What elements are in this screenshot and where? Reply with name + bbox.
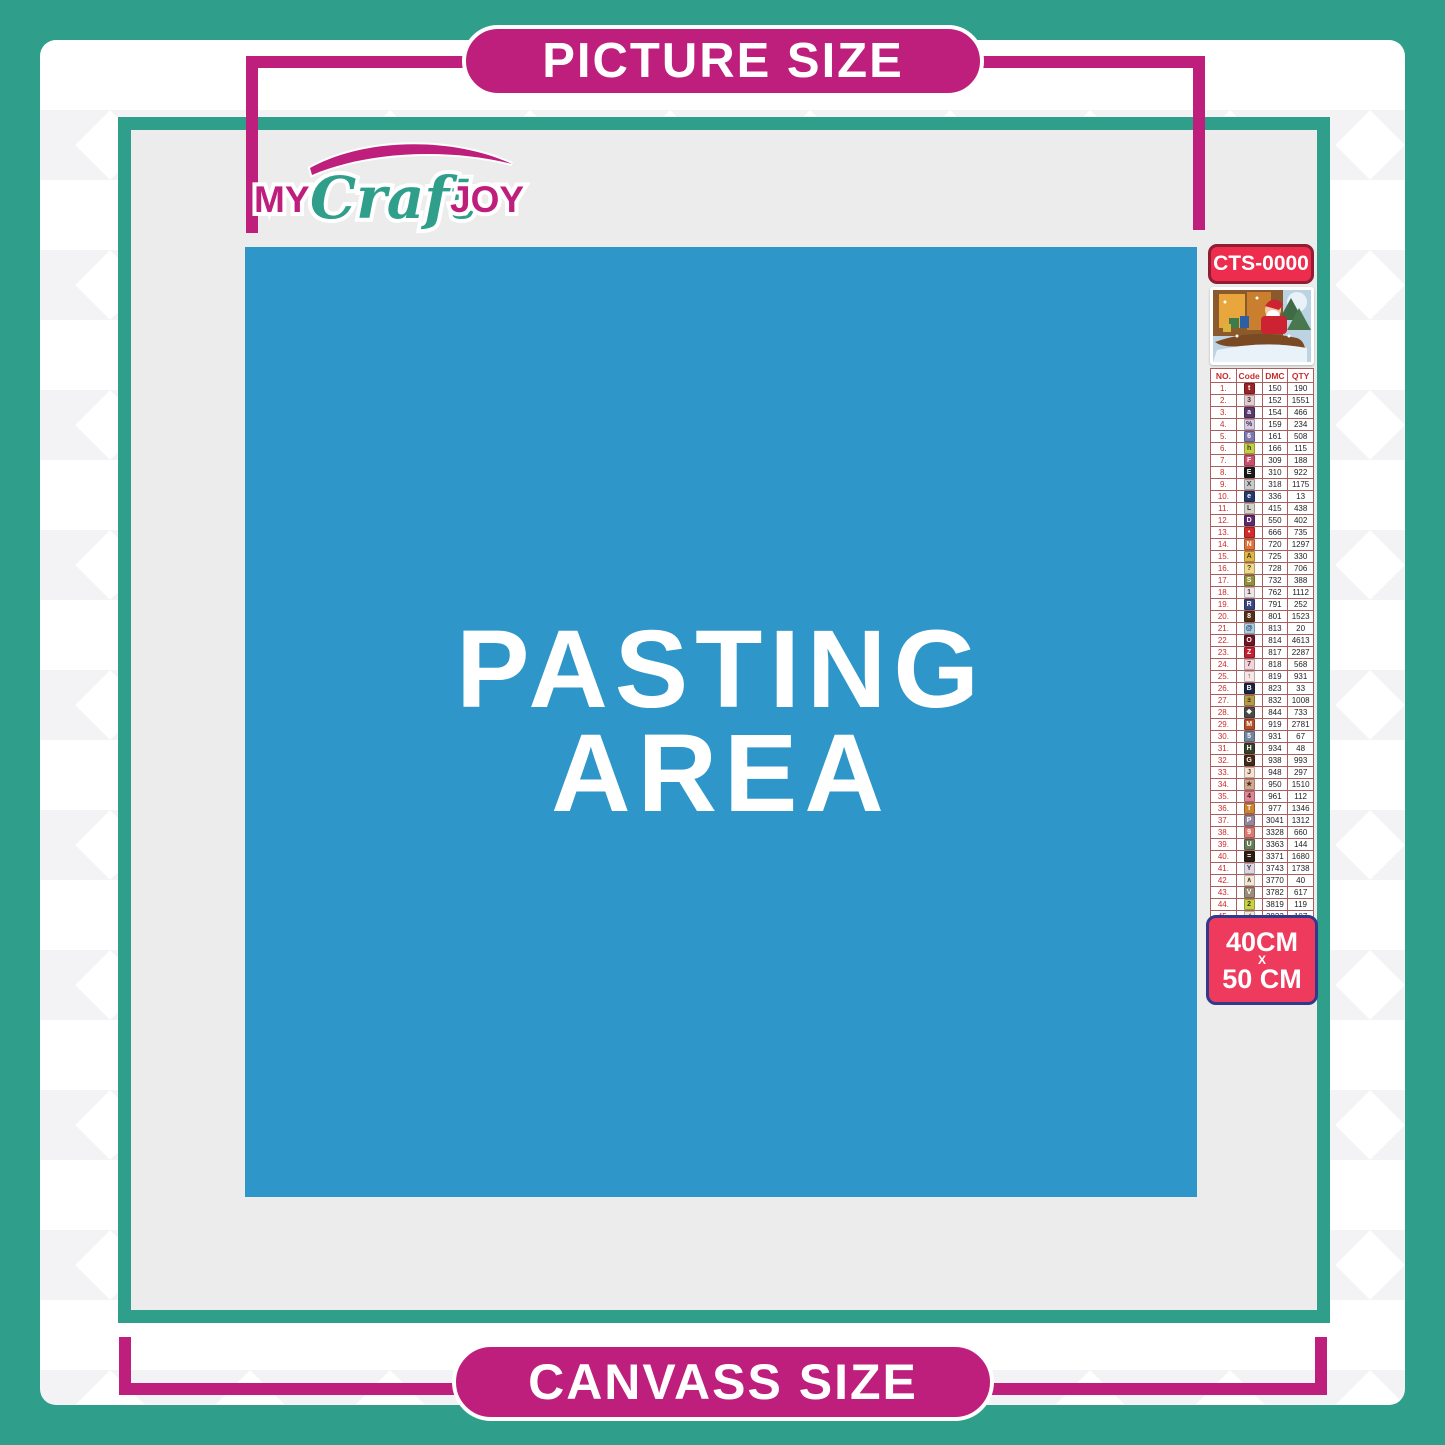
table-row: 25.↑819931 xyxy=(1211,671,1314,683)
cell-code: = xyxy=(1236,851,1262,863)
cell-qty: 1551 xyxy=(1288,395,1314,407)
symbol-swatch: P xyxy=(1244,815,1255,826)
brand-logo: MY Craft JOY xyxy=(244,134,544,244)
cell-qty: 40 xyxy=(1288,875,1314,887)
cell-dmc: 938 xyxy=(1262,755,1288,767)
cell-code: P xyxy=(1236,815,1262,827)
cell-dmc: 415 xyxy=(1262,503,1288,515)
cell-no: 9. xyxy=(1211,479,1237,491)
cell-no: 7. xyxy=(1211,455,1237,467)
table-row: 7.F309188 xyxy=(1211,455,1314,467)
table-row: 3.a154466 xyxy=(1211,407,1314,419)
table-row: 42.∧377040 xyxy=(1211,875,1314,887)
cell-dmc: 3819 xyxy=(1262,899,1288,911)
cell-qty: 48 xyxy=(1288,743,1314,755)
cell-no: 23. xyxy=(1211,647,1237,659)
symbol-swatch: N xyxy=(1244,539,1255,550)
symbol-swatch: Z xyxy=(1244,647,1255,658)
cell-qty: 234 xyxy=(1288,419,1314,431)
symbol-swatch: 9 xyxy=(1244,827,1255,838)
cell-qty: 388 xyxy=(1288,575,1314,587)
symbol-swatch: E xyxy=(1244,467,1255,478)
cell-qty: 1175 xyxy=(1288,479,1314,491)
table-row: 17.S732388 xyxy=(1211,575,1314,587)
symbol-swatch: X xyxy=(1244,479,1255,490)
cell-no: 3. xyxy=(1211,407,1237,419)
cell-no: 44. xyxy=(1211,899,1237,911)
brand-logo-graphic: MY Craft JOY xyxy=(244,134,544,244)
cell-qty: 1680 xyxy=(1288,851,1314,863)
cell-no: 17. xyxy=(1211,575,1237,587)
poster: PASTING AREA MY Craft JOY CTS-0000 xyxy=(0,0,1445,1445)
cell-code: G xyxy=(1236,755,1262,767)
picture-bracket-right-line xyxy=(1193,56,1205,230)
table-row: 33.J948297 xyxy=(1211,767,1314,779)
table-row: 38.93328660 xyxy=(1211,827,1314,839)
cell-dmc: 819 xyxy=(1262,671,1288,683)
symbol-swatch: F xyxy=(1244,455,1255,466)
cell-code: E xyxy=(1236,467,1262,479)
table-row: 22.O8144613 xyxy=(1211,635,1314,647)
cell-no: 35. xyxy=(1211,791,1237,803)
cell-dmc: 844 xyxy=(1262,707,1288,719)
cell-qty: 4613 xyxy=(1288,635,1314,647)
symbol-swatch: 1 xyxy=(1244,587,1255,598)
cell-dmc: 961 xyxy=(1262,791,1288,803)
table-row: 26.B82333 xyxy=(1211,683,1314,695)
cell-dmc: 817 xyxy=(1262,647,1288,659)
cell-qty: 190 xyxy=(1288,383,1314,395)
table-row: 12.D550402 xyxy=(1211,515,1314,527)
cell-no: 22. xyxy=(1211,635,1237,647)
cell-dmc: 823 xyxy=(1262,683,1288,695)
canvass-size-label: CANVASS SIZE xyxy=(528,1353,918,1411)
cell-code: h xyxy=(1236,443,1262,455)
cell-dmc: 919 xyxy=(1262,719,1288,731)
cell-qty: 733 xyxy=(1288,707,1314,719)
table-row: 41.Y37431738 xyxy=(1211,863,1314,875)
symbol-swatch: e xyxy=(1244,491,1255,502)
cell-no: 29. xyxy=(1211,719,1237,731)
table-row: 21.@81320 xyxy=(1211,623,1314,635)
size-height-label: 50 CM xyxy=(1222,966,1302,992)
kit-thumbnail xyxy=(1210,287,1314,365)
cell-qty: 660 xyxy=(1288,827,1314,839)
symbol-swatch: 8 xyxy=(1244,611,1255,622)
cell-no: 43. xyxy=(1211,887,1237,899)
symbol-swatch: 5 xyxy=(1244,731,1255,742)
symbol-swatch: B xyxy=(1244,683,1255,694)
cell-code: D xyxy=(1236,515,1262,527)
cell-code: X xyxy=(1236,479,1262,491)
symbol-swatch: L xyxy=(1244,503,1255,514)
cell-code: S xyxy=(1236,575,1262,587)
table-row: 43.V3782617 xyxy=(1211,887,1314,899)
cell-no: 42. xyxy=(1211,875,1237,887)
cell-no: 6. xyxy=(1211,443,1237,455)
cell-qty: 1523 xyxy=(1288,611,1314,623)
pasting-line-2: AREA xyxy=(456,722,986,827)
cell-code: 5 xyxy=(1236,731,1262,743)
cell-dmc: 336 xyxy=(1262,491,1288,503)
cell-code: 8 xyxy=(1236,611,1262,623)
picture-size-pill: PICTURE SIZE xyxy=(462,25,984,97)
cell-qty: 13 xyxy=(1288,491,1314,503)
cell-code: J xyxy=(1236,767,1262,779)
cell-qty: 2287 xyxy=(1288,647,1314,659)
symbol-swatch: ↑ xyxy=(1244,671,1255,682)
table-row: 35.4961112 xyxy=(1211,791,1314,803)
cell-no: 41. xyxy=(1211,863,1237,875)
cell-no: 4. xyxy=(1211,419,1237,431)
cell-no: 39. xyxy=(1211,839,1237,851)
size-badge: 40CM X 50 CM xyxy=(1206,915,1318,1005)
table-row: 9.X3181175 xyxy=(1211,479,1314,491)
cell-qty: 1510 xyxy=(1288,779,1314,791)
cell-dmc: 150 xyxy=(1262,383,1288,395)
cell-no: 2. xyxy=(1211,395,1237,407)
picture-size-label: PICTURE SIZE xyxy=(542,33,904,89)
cell-no: 5. xyxy=(1211,431,1237,443)
symbol-swatch: U xyxy=(1244,839,1255,850)
table-row: 11.L415438 xyxy=(1211,503,1314,515)
cell-dmc: 3328 xyxy=(1262,827,1288,839)
table-row: 19.R791252 xyxy=(1211,599,1314,611)
symbol-swatch: 2 xyxy=(1244,899,1255,910)
symbol-swatch: 6 xyxy=(1244,431,1255,442)
cell-qty: 735 xyxy=(1288,527,1314,539)
table-row: 15.A725330 xyxy=(1211,551,1314,563)
cell-dmc: 154 xyxy=(1262,407,1288,419)
symbol-swatch: M xyxy=(1244,719,1255,730)
cell-no: 36. xyxy=(1211,803,1237,815)
symbol-swatch: 7 xyxy=(1244,659,1255,670)
cell-dmc: 166 xyxy=(1262,443,1288,455)
kit-code-label: CTS-0000 xyxy=(1213,252,1309,276)
col-header-no: NO. xyxy=(1211,369,1237,383)
cell-dmc: 725 xyxy=(1262,551,1288,563)
cell-dmc: 3371 xyxy=(1262,851,1288,863)
symbol-swatch: G xyxy=(1244,755,1255,766)
table-row: 32.G938993 xyxy=(1211,755,1314,767)
cell-code: R xyxy=(1236,599,1262,611)
cell-no: 31. xyxy=(1211,743,1237,755)
symbol-swatch: a xyxy=(1244,407,1255,418)
cell-code: ∧ xyxy=(1236,875,1262,887)
table-row: 4.%159234 xyxy=(1211,419,1314,431)
cell-dmc: 3743 xyxy=(1262,863,1288,875)
cell-qty: 508 xyxy=(1288,431,1314,443)
cell-qty: 33 xyxy=(1288,683,1314,695)
cell-no: 38. xyxy=(1211,827,1237,839)
cell-dmc: 950 xyxy=(1262,779,1288,791)
cell-code: % xyxy=(1236,419,1262,431)
cell-code: F xyxy=(1236,455,1262,467)
cell-no: 19. xyxy=(1211,599,1237,611)
pasting-line-1: PASTING xyxy=(456,618,986,723)
cell-code: t xyxy=(1236,383,1262,395)
cell-no: 40. xyxy=(1211,851,1237,863)
table-row: 1.t150190 xyxy=(1211,383,1314,395)
cell-no: 13. xyxy=(1211,527,1237,539)
cell-dmc: 318 xyxy=(1262,479,1288,491)
cell-code: M xyxy=(1236,719,1262,731)
cell-code: 3 xyxy=(1236,395,1262,407)
kit-thumbnail-image xyxy=(1213,290,1311,362)
table-row: 20.88011523 xyxy=(1211,611,1314,623)
kit-code-badge: CTS-0000 xyxy=(1208,244,1314,284)
symbol-swatch: % xyxy=(1244,419,1255,430)
table-row: 5.6161508 xyxy=(1211,431,1314,443)
cell-code: B xyxy=(1236,683,1262,695)
symbol-swatch: ★ xyxy=(1244,779,1255,790)
cell-code: A xyxy=(1236,551,1262,563)
symbol-swatch: T xyxy=(1244,803,1255,814)
cell-no: 33. xyxy=(1211,767,1237,779)
symbol-swatch: = xyxy=(1244,851,1255,862)
cell-qty: 706 xyxy=(1288,563,1314,575)
symbol-swatch: H xyxy=(1244,743,1255,754)
cell-code: V xyxy=(1236,887,1262,899)
symbol-swatch: ❖ xyxy=(1244,707,1255,718)
cell-dmc: 3770 xyxy=(1262,875,1288,887)
col-header-code: Code xyxy=(1236,369,1262,383)
table-row: 27.±8321008 xyxy=(1211,695,1314,707)
table-row: 13.•666735 xyxy=(1211,527,1314,539)
pasting-area: PASTING AREA xyxy=(245,247,1197,1197)
cell-dmc: 791 xyxy=(1262,599,1288,611)
cell-code: 6 xyxy=(1236,431,1262,443)
table-row: 36.T9771346 xyxy=(1211,803,1314,815)
table-row: 16.?728706 xyxy=(1211,563,1314,575)
cell-dmc: 931 xyxy=(1262,731,1288,743)
cell-code: 7 xyxy=(1236,659,1262,671)
cell-qty: 922 xyxy=(1288,467,1314,479)
table-row: 40.=33711680 xyxy=(1211,851,1314,863)
table-header-row: NO. Code DMC QTY xyxy=(1211,369,1314,383)
symbol-swatch: Y xyxy=(1244,863,1255,874)
cell-code: Z xyxy=(1236,647,1262,659)
pasting-area-label: PASTING AREA xyxy=(456,618,986,827)
cell-no: 27. xyxy=(1211,695,1237,707)
col-header-dmc: DMC xyxy=(1262,369,1288,383)
cell-qty: 115 xyxy=(1288,443,1314,455)
cell-no: 15. xyxy=(1211,551,1237,563)
symbol-swatch: S xyxy=(1244,575,1255,586)
cell-qty: 568 xyxy=(1288,659,1314,671)
symbol-swatch: J xyxy=(1244,767,1255,778)
dmc-color-table: NO. Code DMC QTY 1.t1501902.315215513.a1… xyxy=(1210,368,1314,959)
cell-no: 34. xyxy=(1211,779,1237,791)
cell-qty: 297 xyxy=(1288,767,1314,779)
cell-qty: 119 xyxy=(1288,899,1314,911)
symbol-swatch: ∧ xyxy=(1244,875,1255,886)
cell-no: 37. xyxy=(1211,815,1237,827)
cell-dmc: 3041 xyxy=(1262,815,1288,827)
table-row: 10.e33613 xyxy=(1211,491,1314,503)
canvass-size-pill: CANVASS SIZE xyxy=(452,1343,994,1421)
cell-code: @ xyxy=(1236,623,1262,635)
cell-code: 9 xyxy=(1236,827,1262,839)
symbol-swatch: • xyxy=(1244,527,1255,538)
symbol-swatch: V xyxy=(1244,887,1255,898)
cell-code: e xyxy=(1236,491,1262,503)
cell-qty: 144 xyxy=(1288,839,1314,851)
cell-dmc: 813 xyxy=(1262,623,1288,635)
cell-code: N xyxy=(1236,539,1262,551)
cell-dmc: 934 xyxy=(1262,743,1288,755)
table-row: 44.23819119 xyxy=(1211,899,1314,911)
cell-code: T xyxy=(1236,803,1262,815)
cell-no: 8. xyxy=(1211,467,1237,479)
cell-qty: 2781 xyxy=(1288,719,1314,731)
cell-code: Y xyxy=(1236,863,1262,875)
cell-code: U xyxy=(1236,839,1262,851)
table-row: 29.M9192781 xyxy=(1211,719,1314,731)
cell-no: 10. xyxy=(1211,491,1237,503)
cell-no: 1. xyxy=(1211,383,1237,395)
cell-dmc: 152 xyxy=(1262,395,1288,407)
cell-dmc: 310 xyxy=(1262,467,1288,479)
cell-code: ↑ xyxy=(1236,671,1262,683)
cell-code: 2 xyxy=(1236,899,1262,911)
cell-no: 16. xyxy=(1211,563,1237,575)
table-row: 30.593167 xyxy=(1211,731,1314,743)
symbol-swatch: h xyxy=(1244,443,1255,454)
cell-qty: 1738 xyxy=(1288,863,1314,875)
cell-no: 32. xyxy=(1211,755,1237,767)
cell-no: 24. xyxy=(1211,659,1237,671)
cell-code: • xyxy=(1236,527,1262,539)
symbol-swatch: ± xyxy=(1244,695,1255,706)
table-row: 34.★9501510 xyxy=(1211,779,1314,791)
cell-qty: 188 xyxy=(1288,455,1314,467)
cell-dmc: 948 xyxy=(1262,767,1288,779)
cell-code: H xyxy=(1236,743,1262,755)
cell-dmc: 3363 xyxy=(1262,839,1288,851)
cell-code: ? xyxy=(1236,563,1262,575)
cell-qty: 617 xyxy=(1288,887,1314,899)
table-row: 31.H93448 xyxy=(1211,743,1314,755)
cell-dmc: 818 xyxy=(1262,659,1288,671)
cell-qty: 993 xyxy=(1288,755,1314,767)
table-row: 37.P30411312 xyxy=(1211,815,1314,827)
cell-no: 26. xyxy=(1211,683,1237,695)
cell-code: 4 xyxy=(1236,791,1262,803)
table-row: 8.E310922 xyxy=(1211,467,1314,479)
symbol-swatch: @ xyxy=(1244,623,1255,634)
cell-code: ★ xyxy=(1236,779,1262,791)
cell-qty: 112 xyxy=(1288,791,1314,803)
cell-code: ❖ xyxy=(1236,707,1262,719)
symbol-swatch: t xyxy=(1244,383,1255,394)
cell-qty: 438 xyxy=(1288,503,1314,515)
cell-dmc: 720 xyxy=(1262,539,1288,551)
cell-dmc: 159 xyxy=(1262,419,1288,431)
cell-dmc: 762 xyxy=(1262,587,1288,599)
cell-qty: 1112 xyxy=(1288,587,1314,599)
cell-dmc: 801 xyxy=(1262,611,1288,623)
cell-dmc: 832 xyxy=(1262,695,1288,707)
cell-qty: 931 xyxy=(1288,671,1314,683)
symbol-swatch: R xyxy=(1244,599,1255,610)
cell-no: 20. xyxy=(1211,611,1237,623)
symbol-swatch: O xyxy=(1244,635,1255,646)
cell-code: L xyxy=(1236,503,1262,515)
cell-qty: 402 xyxy=(1288,515,1314,527)
symbol-swatch: ? xyxy=(1244,563,1255,574)
cell-qty: 330 xyxy=(1288,551,1314,563)
symbol-swatch: D xyxy=(1244,515,1255,526)
cell-code: 1 xyxy=(1236,587,1262,599)
symbol-swatch: 4 xyxy=(1244,791,1255,802)
cell-qty: 67 xyxy=(1288,731,1314,743)
cell-qty: 1008 xyxy=(1288,695,1314,707)
cell-no: 14. xyxy=(1211,539,1237,551)
cell-no: 12. xyxy=(1211,515,1237,527)
cell-dmc: 550 xyxy=(1262,515,1288,527)
symbol-swatch: 3 xyxy=(1244,395,1255,406)
logo-word-joy: JOY xyxy=(450,179,524,220)
cell-qty: 252 xyxy=(1288,599,1314,611)
cell-qty: 20 xyxy=(1288,623,1314,635)
table-row: 6.h166115 xyxy=(1211,443,1314,455)
cell-dmc: 309 xyxy=(1262,455,1288,467)
table-row: 23.Z8172287 xyxy=(1211,647,1314,659)
table-row: 24.7818568 xyxy=(1211,659,1314,671)
cell-dmc: 728 xyxy=(1262,563,1288,575)
cell-dmc: 732 xyxy=(1262,575,1288,587)
cell-dmc: 666 xyxy=(1262,527,1288,539)
cell-code: a xyxy=(1236,407,1262,419)
cell-no: 11. xyxy=(1211,503,1237,515)
cell-qty: 1346 xyxy=(1288,803,1314,815)
cell-no: 28. xyxy=(1211,707,1237,719)
table-row: 28.❖844733 xyxy=(1211,707,1314,719)
cell-no: 25. xyxy=(1211,671,1237,683)
symbol-swatch: A xyxy=(1244,551,1255,562)
cell-dmc: 3782 xyxy=(1262,887,1288,899)
cell-qty: 466 xyxy=(1288,407,1314,419)
cell-no: 21. xyxy=(1211,623,1237,635)
cell-code: O xyxy=(1236,635,1262,647)
table-row: 2.31521551 xyxy=(1211,395,1314,407)
cell-dmc: 977 xyxy=(1262,803,1288,815)
cell-no: 18. xyxy=(1211,587,1237,599)
canvass-bracket-right-stub xyxy=(1315,1337,1327,1395)
cell-dmc: 161 xyxy=(1262,431,1288,443)
cell-code: ± xyxy=(1236,695,1262,707)
cell-qty: 1312 xyxy=(1288,815,1314,827)
table-row: 39.U3363144 xyxy=(1211,839,1314,851)
dmc-table-body: 1.t1501902.315215513.a1544664.%1592345.6… xyxy=(1211,383,1314,959)
table-row: 14.N7201297 xyxy=(1211,539,1314,551)
table-row: 18.17621112 xyxy=(1211,587,1314,599)
cell-dmc: 814 xyxy=(1262,635,1288,647)
cell-no: 30. xyxy=(1211,731,1237,743)
logo-word-my: MY xyxy=(254,179,310,220)
col-header-qty: QTY xyxy=(1288,369,1314,383)
canvass-bracket-left-stub xyxy=(119,1337,131,1395)
cell-qty: 1297 xyxy=(1288,539,1314,551)
size-width-label: 40CM xyxy=(1226,929,1298,955)
